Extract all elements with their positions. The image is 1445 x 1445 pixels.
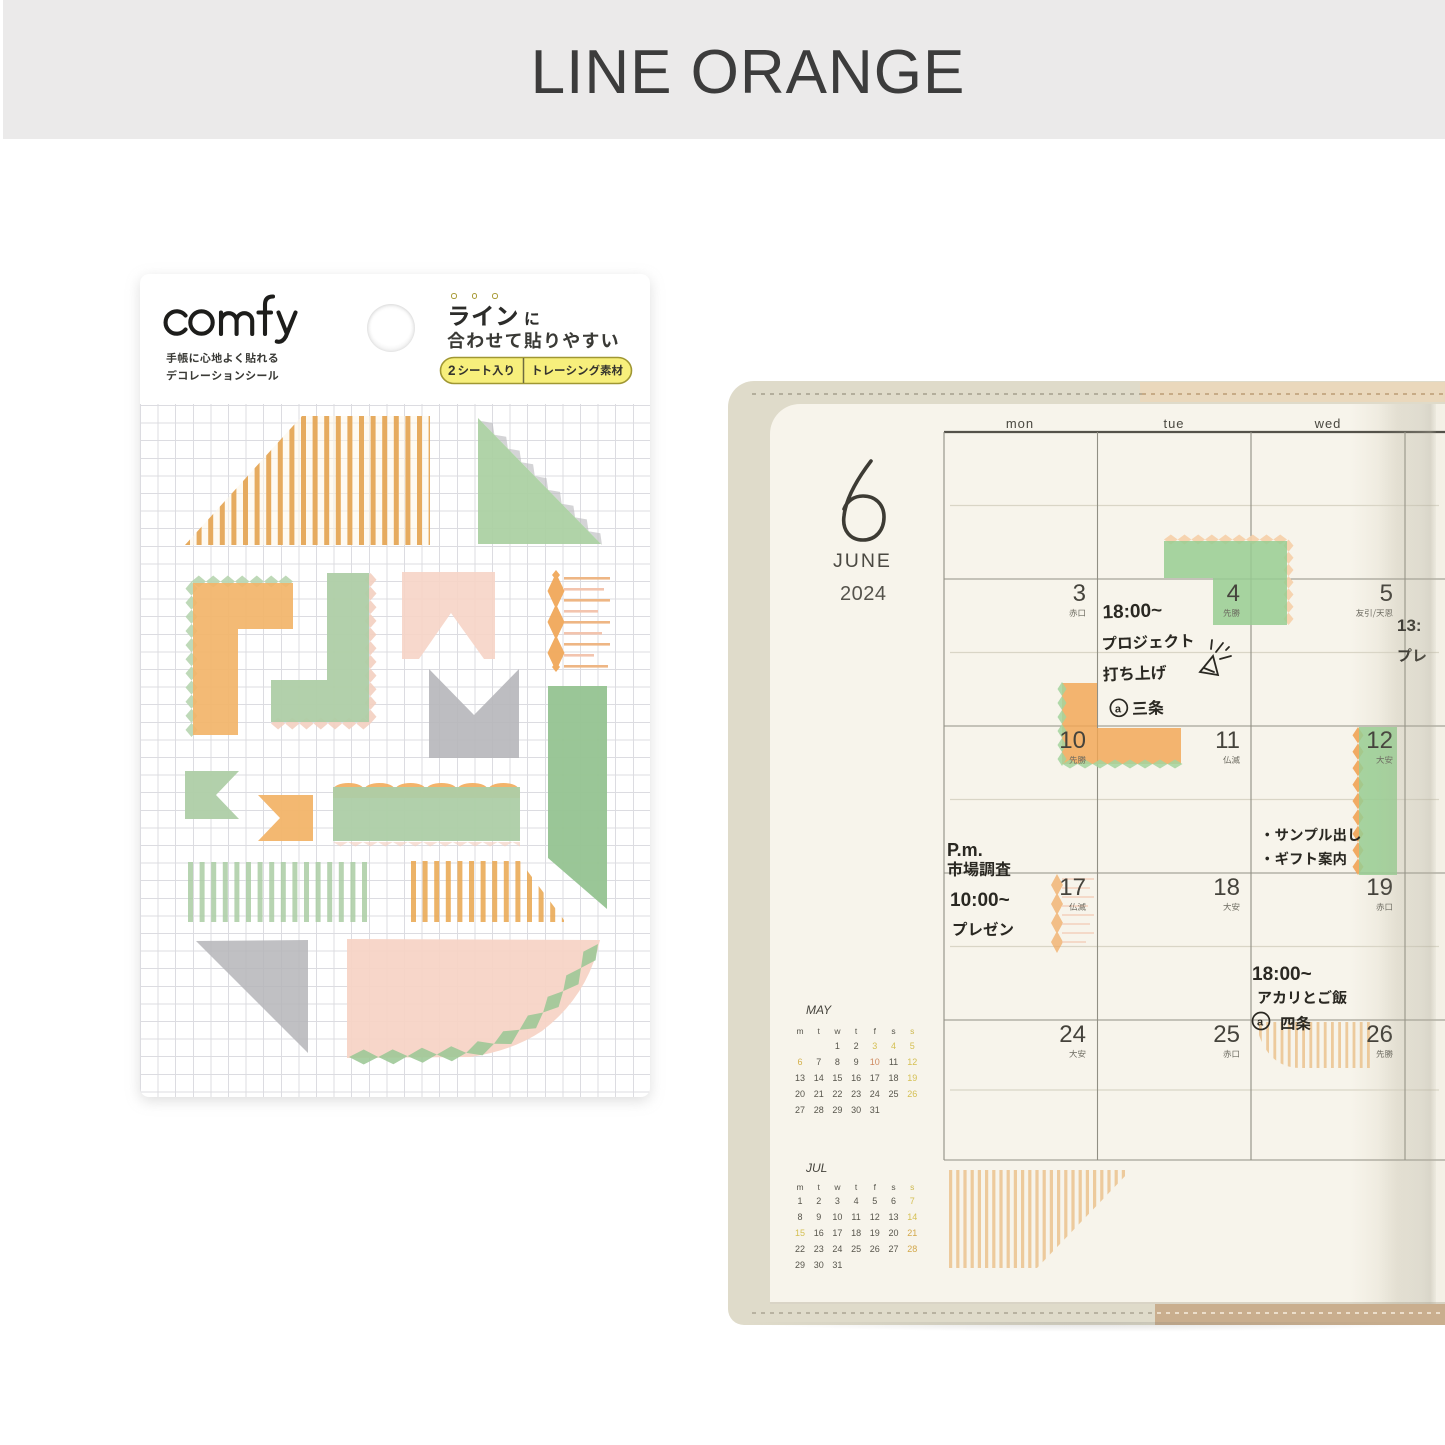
svg-text:22: 22	[832, 1089, 842, 1099]
svg-text:18: 18	[888, 1073, 898, 1083]
svg-text:24: 24	[832, 1244, 842, 1254]
svg-text:12: 12	[870, 1212, 880, 1222]
svg-text:8: 8	[797, 1212, 802, 1222]
svg-text:t: t	[818, 1182, 821, 1192]
svg-text:28: 28	[814, 1105, 824, 1115]
svg-text:2: 2	[816, 1196, 821, 1206]
svg-text:20: 20	[795, 1089, 805, 1099]
svg-text:18: 18	[851, 1228, 861, 1238]
svg-text:7: 7	[816, 1057, 821, 1067]
svg-text:25: 25	[851, 1244, 861, 1254]
svg-text:wed: wed	[1314, 416, 1342, 431]
svg-text:1: 1	[797, 1196, 802, 1206]
svg-text:4: 4	[1227, 580, 1240, 607]
svg-text:3: 3	[835, 1196, 840, 1206]
svg-text:30: 30	[851, 1105, 861, 1115]
svg-text:15: 15	[795, 1228, 805, 1238]
svg-text:2: 2	[448, 363, 456, 378]
svg-text:14: 14	[907, 1212, 917, 1222]
svg-text:f: f	[874, 1182, 877, 1192]
svg-text:tue: tue	[1163, 416, 1184, 431]
svg-text:MAY: MAY	[806, 1003, 832, 1017]
svg-text:16: 16	[814, 1228, 824, 1238]
svg-text:29: 29	[795, 1260, 805, 1270]
svg-text:w: w	[833, 1026, 841, 1036]
svg-text:23: 23	[851, 1089, 861, 1099]
svg-text:a: a	[1115, 703, 1122, 715]
svg-text:16: 16	[851, 1073, 861, 1083]
svg-text:f: f	[874, 1026, 877, 1036]
svg-text:2024: 2024	[840, 583, 887, 605]
svg-text:27: 27	[888, 1244, 898, 1254]
svg-text:17: 17	[1059, 874, 1086, 901]
svg-text:1: 1	[835, 1041, 840, 1051]
svg-text:24: 24	[870, 1089, 880, 1099]
svg-text:w: w	[833, 1182, 841, 1192]
svg-text:5: 5	[910, 1041, 915, 1051]
svg-text:JUL: JUL	[805, 1161, 827, 1175]
svg-text:a: a	[1257, 1017, 1264, 1029]
svg-text:13: 13	[795, 1073, 805, 1083]
svg-text:s: s	[891, 1182, 895, 1192]
svg-text:11: 11	[889, 1057, 898, 1067]
svg-text:mon: mon	[1006, 416, 1034, 431]
svg-text:s: s	[910, 1182, 914, 1192]
svg-text:31: 31	[832, 1260, 842, 1270]
svg-text:25: 25	[888, 1089, 898, 1099]
svg-text:10: 10	[832, 1212, 842, 1222]
svg-text:13: 13	[888, 1212, 898, 1222]
svg-text:31: 31	[870, 1105, 880, 1115]
svg-text:17: 17	[832, 1228, 842, 1238]
svg-text:t: t	[855, 1026, 858, 1036]
svg-text:10: 10	[1059, 727, 1086, 754]
svg-text:s: s	[891, 1026, 895, 1036]
svg-text:30: 30	[814, 1260, 824, 1270]
svg-text:JUNE: JUNE	[833, 550, 892, 572]
svg-text:24: 24	[1059, 1021, 1086, 1048]
svg-text:11: 11	[851, 1212, 860, 1222]
svg-text:4: 4	[854, 1196, 859, 1206]
svg-text:6: 6	[891, 1196, 896, 1206]
svg-text:18: 18	[1213, 874, 1240, 901]
svg-text:5: 5	[872, 1196, 877, 1206]
svg-text:25: 25	[1213, 1021, 1240, 1048]
svg-text:18:00~: 18:00~	[1252, 964, 1312, 985]
svg-text:7: 7	[910, 1196, 915, 1206]
svg-text:m: m	[796, 1026, 803, 1036]
svg-text:15: 15	[832, 1073, 842, 1083]
svg-text:P.m.: P.m.	[947, 840, 983, 860]
svg-text:4: 4	[891, 1041, 896, 1051]
svg-text:27: 27	[795, 1105, 805, 1115]
svg-text:14: 14	[814, 1073, 824, 1083]
svg-text:26: 26	[870, 1244, 880, 1254]
svg-text:17: 17	[870, 1073, 880, 1083]
svg-text:3: 3	[1073, 580, 1086, 607]
svg-text:3: 3	[872, 1041, 877, 1051]
svg-text:2: 2	[854, 1041, 859, 1051]
svg-text:12: 12	[907, 1057, 917, 1067]
svg-text:21: 21	[814, 1089, 824, 1099]
svg-text:t: t	[855, 1182, 858, 1192]
svg-text:29: 29	[832, 1105, 842, 1115]
svg-text:9: 9	[816, 1212, 821, 1222]
svg-text:23: 23	[814, 1244, 824, 1254]
svg-text:8: 8	[835, 1057, 840, 1067]
svg-text:19: 19	[870, 1228, 880, 1238]
svg-text:18:00~: 18:00~	[1102, 600, 1162, 623]
svg-text:11: 11	[1215, 727, 1240, 754]
svg-text:22: 22	[795, 1244, 805, 1254]
svg-text:6: 6	[797, 1057, 802, 1067]
svg-text:19: 19	[907, 1073, 917, 1083]
svg-text:9: 9	[854, 1057, 859, 1067]
svg-text:m: m	[796, 1182, 803, 1192]
svg-text:26: 26	[907, 1089, 917, 1099]
svg-text:s: s	[910, 1026, 914, 1036]
svg-text:21: 21	[907, 1228, 917, 1238]
svg-text:28: 28	[907, 1244, 917, 1254]
svg-text:20: 20	[888, 1228, 898, 1238]
svg-text:10: 10	[870, 1057, 880, 1067]
svg-text:t: t	[818, 1026, 821, 1036]
svg-text:10:00~: 10:00~	[950, 890, 1010, 911]
